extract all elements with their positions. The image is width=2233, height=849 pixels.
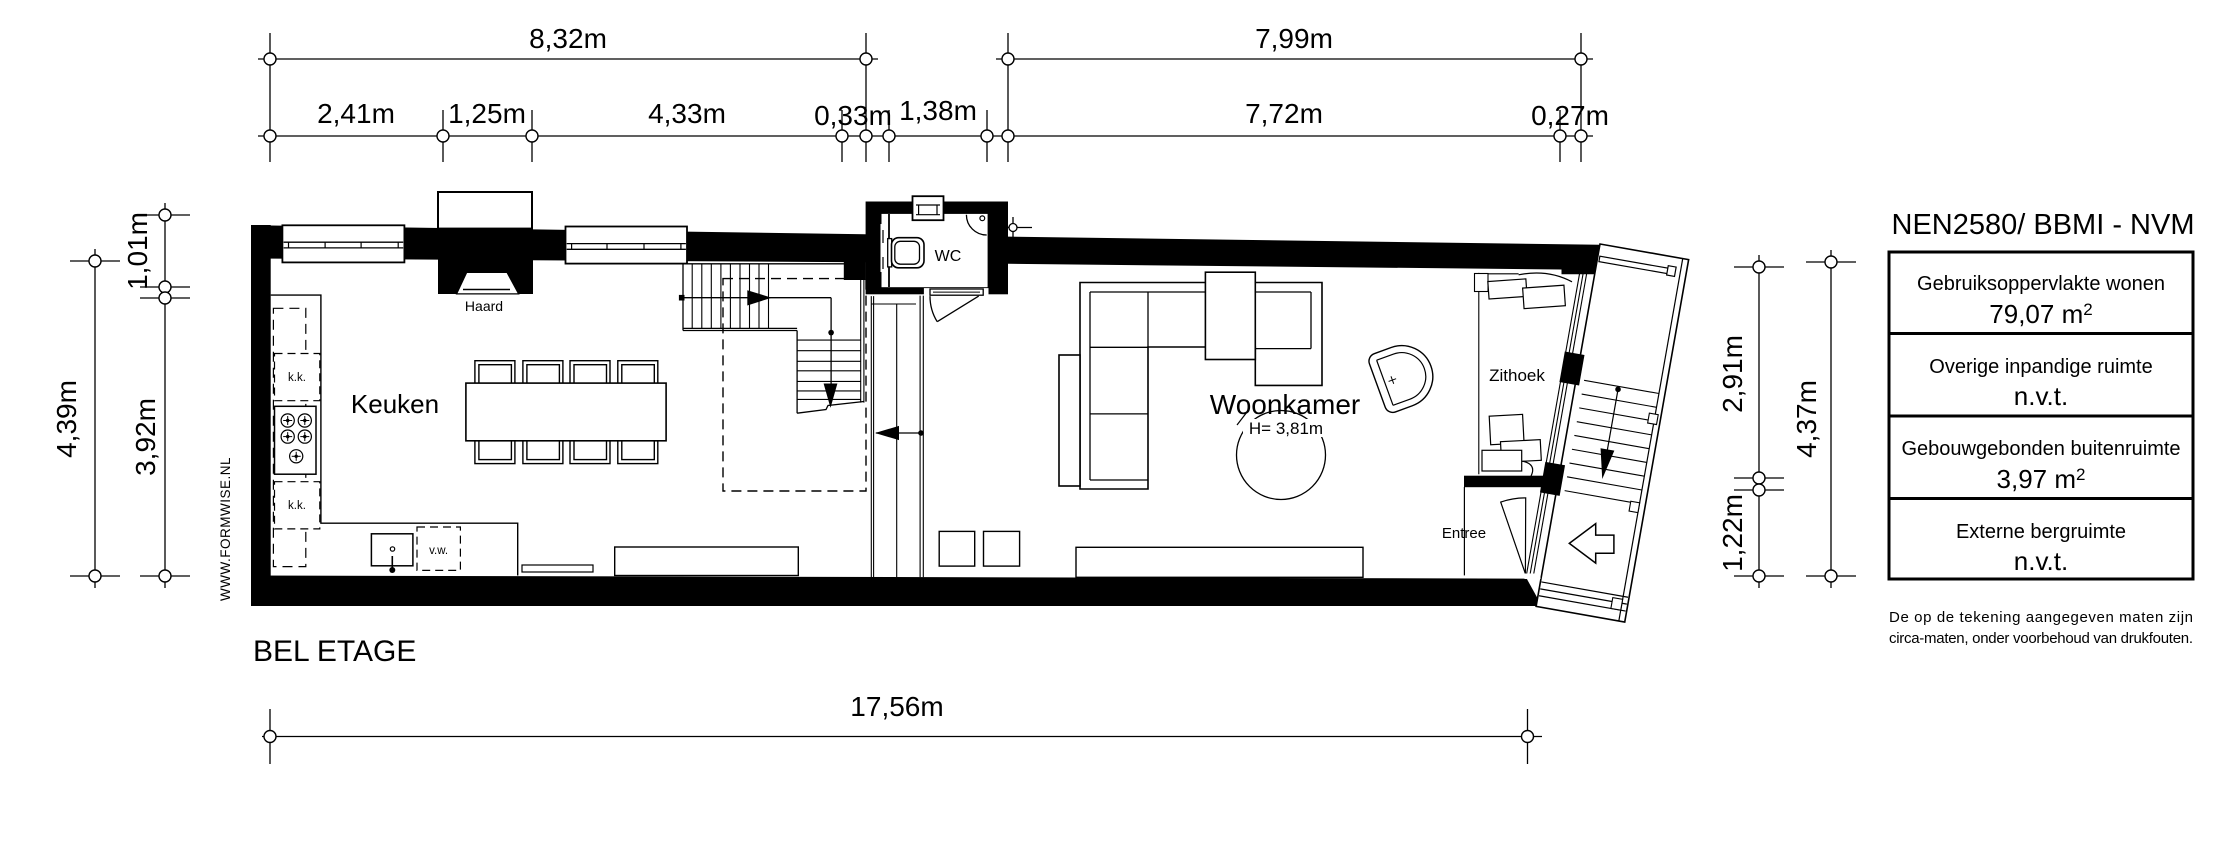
svg-text:Zithoek: Zithoek (1489, 366, 1545, 385)
svg-text:4,39m: 4,39m (51, 380, 82, 458)
svg-text:n.v.t.: n.v.t. (2014, 546, 2068, 576)
svg-text:WC: WC (935, 248, 962, 265)
svg-text:0,27m: 0,27m (1531, 100, 1609, 131)
svg-text:7,99m: 7,99m (1255, 23, 1333, 54)
svg-text:De op de tekening aangegeven m: De op de tekening aangegeven maten zijn (1889, 609, 2193, 626)
svg-text:0,33m: 0,33m (814, 100, 892, 131)
svg-text:4,37m: 4,37m (1791, 380, 1822, 458)
svg-text:8,32m: 8,32m (529, 23, 607, 54)
svg-text:k.k.: k.k. (288, 372, 306, 384)
svg-text:Woonkamer: Woonkamer (1210, 389, 1360, 420)
svg-text:1,22m: 1,22m (1717, 494, 1748, 572)
svg-text:Overige inpandige ruimte: Overige inpandige ruimte (1929, 356, 2152, 378)
svg-text:1,25m: 1,25m (448, 98, 526, 129)
svg-text:7,72m: 7,72m (1245, 98, 1323, 129)
svg-text:Gebruiksoppervlakte wonen: Gebruiksoppervlakte wonen (1917, 273, 2165, 295)
svg-text:1,38m: 1,38m (899, 95, 977, 126)
svg-text:k.k.: k.k. (288, 500, 306, 512)
svg-text:3,92m: 3,92m (130, 398, 161, 476)
svg-text:2,91m: 2,91m (1717, 335, 1748, 413)
svg-text:79,07 m2: 79,07 m2 (1989, 299, 2092, 329)
svg-text:3,97 m2: 3,97 m2 (1997, 464, 2086, 494)
svg-text:Keuken: Keuken (351, 389, 439, 419)
svg-text:4,33m: 4,33m (648, 98, 726, 129)
svg-text:H= 3,81m: H= 3,81m (1249, 419, 1323, 438)
svg-text:n.v.t.: n.v.t. (2014, 381, 2068, 411)
svg-text:Haard: Haard (465, 298, 503, 314)
svg-text:v.w.: v.w. (429, 545, 448, 557)
svg-text:Gebouwgebonden buitenruimte: Gebouwgebonden buitenruimte (1901, 438, 2180, 460)
svg-text:NEN2580/ BBMI - NVM: NEN2580/ BBMI - NVM (1892, 209, 2195, 241)
svg-text:Externe bergruimte: Externe bergruimte (1956, 521, 2126, 543)
svg-text:WWW.FORMWISE.NL: WWW.FORMWISE.NL (218, 457, 233, 601)
svg-text:2,41m: 2,41m (317, 98, 395, 129)
svg-text:Entree: Entree (1442, 525, 1486, 542)
svg-text:BEL ETAGE: BEL ETAGE (253, 635, 416, 668)
svg-text:17,56m: 17,56m (850, 691, 943, 722)
svg-text:1,01m: 1,01m (122, 212, 153, 290)
svg-text:circa-maten, onder voorbehoud: circa-maten, onder voorbehoud van drukfo… (1889, 630, 2193, 647)
